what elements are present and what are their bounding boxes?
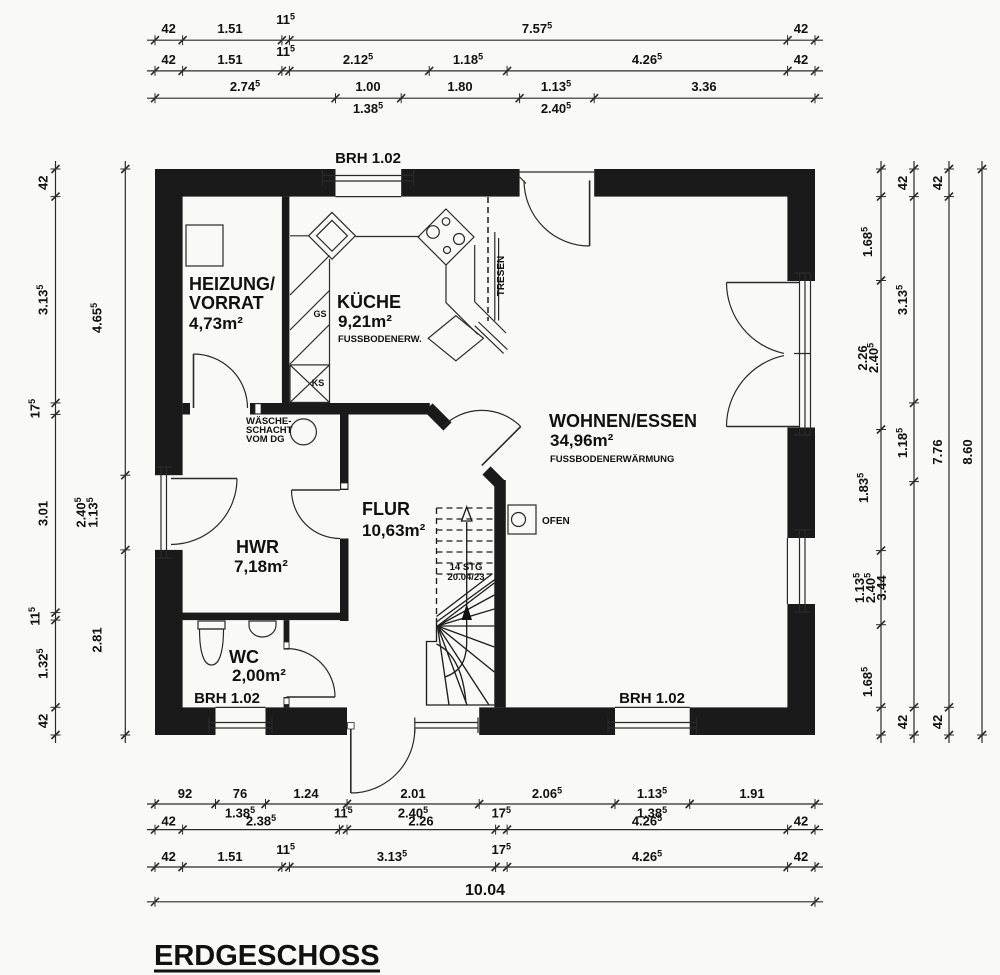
svg-text:3.44: 3.44 <box>874 575 889 601</box>
svg-text:OFEN: OFEN <box>542 516 570 527</box>
svg-text:34,96m²: 34,96m² <box>550 431 614 450</box>
svg-text:2.01: 2.01 <box>400 786 425 801</box>
svg-text:20.04/23: 20.04/23 <box>448 572 485 583</box>
svg-text:92: 92 <box>178 786 192 801</box>
svg-text:42: 42 <box>36 176 51 190</box>
svg-text:2.26: 2.26 <box>408 814 433 829</box>
svg-text:1.91: 1.91 <box>739 786 764 801</box>
svg-text:TRESEN: TRESEN <box>496 256 507 297</box>
svg-text:4,73m²: 4,73m² <box>189 314 243 333</box>
svg-text:FUSSBODENERWÄRMUNG: FUSSBODENERWÄRMUNG <box>550 454 674 465</box>
svg-text:GS: GS <box>313 309 326 319</box>
svg-text:42: 42 <box>161 814 175 829</box>
svg-text:HWR: HWR <box>236 537 279 557</box>
svg-text:76: 76 <box>233 786 247 801</box>
svg-text:KS: KS <box>312 378 325 388</box>
svg-text:WOHNEN/ESSEN: WOHNEN/ESSEN <box>549 411 697 431</box>
svg-text:ERDGESCHOSS: ERDGESCHOSS <box>154 940 380 972</box>
svg-text:42: 42 <box>794 21 808 36</box>
svg-text:1.51: 1.51 <box>217 52 242 67</box>
svg-text:1.80: 1.80 <box>447 79 472 94</box>
svg-text:2,00m²: 2,00m² <box>232 666 286 685</box>
svg-text:42: 42 <box>930 176 945 190</box>
svg-text:42: 42 <box>161 849 175 864</box>
svg-text:42: 42 <box>161 21 175 36</box>
svg-text:BRH 1.02: BRH 1.02 <box>335 150 401 167</box>
svg-text:9,21m²: 9,21m² <box>338 312 392 331</box>
svg-text:VORRAT: VORRAT <box>189 293 264 313</box>
svg-text:WC: WC <box>229 647 259 667</box>
svg-text:42: 42 <box>895 715 910 729</box>
svg-text:42: 42 <box>794 849 808 864</box>
svg-text:7,18m²: 7,18m² <box>234 557 288 576</box>
svg-text:HEIZUNG/: HEIZUNG/ <box>189 274 275 294</box>
svg-text:1.51: 1.51 <box>217 849 242 864</box>
svg-text:1.00: 1.00 <box>355 79 380 94</box>
svg-text:8.60: 8.60 <box>960 439 975 464</box>
svg-text:2.81: 2.81 <box>89 627 104 652</box>
svg-text:BRH 1.02: BRH 1.02 <box>619 690 685 707</box>
svg-text:3.36: 3.36 <box>691 79 716 94</box>
svg-text:42: 42 <box>930 715 945 729</box>
svg-text:KÜCHE: KÜCHE <box>337 292 401 312</box>
svg-text:FLUR: FLUR <box>362 499 410 519</box>
svg-text:42: 42 <box>36 714 51 728</box>
svg-text:1.24: 1.24 <box>293 786 319 801</box>
svg-text:VOM DG: VOM DG <box>246 434 285 445</box>
svg-text:3.01: 3.01 <box>36 501 51 526</box>
svg-text:FUSSBODENERW.: FUSSBODENERW. <box>338 334 422 345</box>
svg-text:1.51: 1.51 <box>217 21 242 36</box>
svg-text:10,63m²: 10,63m² <box>362 521 426 540</box>
svg-text:10.04: 10.04 <box>465 882 505 899</box>
svg-text:42: 42 <box>161 52 175 67</box>
svg-text:42: 42 <box>895 176 910 190</box>
svg-text:42: 42 <box>794 52 808 67</box>
svg-text:BRH 1.02: BRH 1.02 <box>194 690 260 707</box>
svg-text:42: 42 <box>794 814 808 829</box>
svg-text:7.76: 7.76 <box>930 439 945 464</box>
